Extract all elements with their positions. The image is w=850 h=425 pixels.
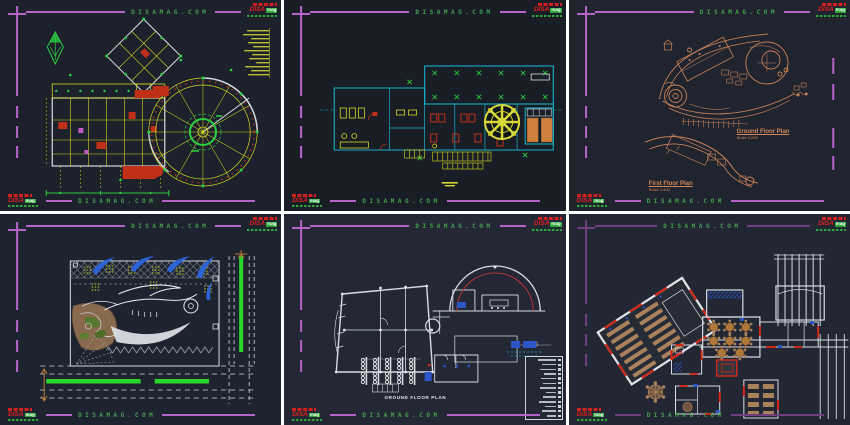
watermark-top: DISAMAG.COM [595, 8, 810, 16]
panel-resort-plan[interactable]: DISAMAG.COM DISAMAG.COM DISAmag DISAmag [0, 0, 281, 211]
watermark-text: DISAMAG.COM [647, 198, 725, 205]
watermark-text: DISAMAG.COM [415, 223, 493, 230]
linear-building-drawing [284, 0, 565, 211]
logo-tagline [816, 15, 846, 17]
watermark-bottom: DISAMAG.COM [615, 411, 824, 419]
dome-plan-drawing [284, 214, 565, 425]
restaurant-plan-drawing [569, 214, 850, 425]
panel-linear-building-plan[interactable]: DISAMAG.COM DISAMAG.COM DISAmag DISAmag [284, 0, 565, 211]
logo-tagline [292, 205, 322, 207]
disamag-logo: DISAmag [247, 3, 277, 17]
plan-title-label: GROUND FLOOR PLAN [380, 395, 450, 400]
cad-plan-collage: DISAMAG.COM DISAMAG.COM DISAmag DISAmag [0, 0, 850, 425]
disamag-logo: DISAmag [532, 217, 562, 231]
disamag-logo: DISAmag [577, 408, 607, 422]
watermark-bottom: DISAMAG.COM [46, 197, 255, 205]
resort-plan-drawing [0, 0, 281, 211]
disamag-logo: DISAmag [532, 3, 562, 17]
watermark-text: DISAMAG.COM [362, 412, 440, 419]
panel-landscape-site-plan[interactable]: DISAMAG.COM DISAMAG.COM DISAmag DISAmag [0, 214, 281, 425]
disamag-logo: DISAmag [8, 194, 38, 208]
watermark-bottom: DISAMAG.COM [615, 197, 824, 205]
watermark-text: DISAMAG.COM [78, 412, 156, 419]
disamag-logo: DISAmag [8, 408, 38, 422]
watermark-top: DISAMAG.COM [26, 8, 241, 16]
watermark-text: DISAMAG.COM [647, 412, 725, 419]
logo-tagline [247, 229, 277, 231]
disamag-logo: DISAmag [816, 217, 846, 231]
watermark-text: DISAMAG.COM [78, 198, 156, 205]
logo-tagline [8, 205, 38, 207]
disamag-logo: DISAmag [292, 408, 322, 422]
watermark-top: DISAMAG.COM [310, 222, 525, 230]
site-plan-drawing [0, 214, 281, 425]
disamag-logo: DISAmag [292, 194, 322, 208]
disamag-logo: DISAmag [577, 194, 607, 208]
logo-tagline [532, 229, 562, 231]
watermark-text: DISAMAG.COM [131, 223, 209, 230]
logo-tagline [8, 419, 38, 421]
ground-floor-label: Ground Floor Plan Scale 1/200 [737, 129, 790, 141]
logo-tagline [577, 205, 607, 207]
logo-tagline [816, 229, 846, 231]
watermark-text: DISAMAG.COM [700, 9, 778, 16]
watermark-text: DISAMAG.COM [131, 9, 209, 16]
watermark-text: DISAMAG.COM [362, 198, 440, 205]
panel-dome-floor-plan[interactable]: GROUND FLOOR PLAN DISAMAG.COM DISAMAG.CO… [284, 214, 565, 425]
panel-organic-curved-plan[interactable]: Ground Floor Plan Scale 1/200 First Floo… [569, 0, 850, 211]
logo-tagline [532, 15, 562, 17]
watermark-top: DISAMAG.COM [310, 8, 525, 16]
watermark-top: DISAMAG.COM [595, 222, 810, 230]
first-floor-label: First Floor Plan Scale 1/100 [649, 181, 693, 193]
disamag-logo: DISAmag [247, 217, 277, 231]
watermark-top: DISAMAG.COM [26, 222, 241, 230]
watermark-text: DISAMAG.COM [663, 223, 741, 230]
watermark-text: DISAMAG.COM [415, 9, 493, 16]
logo-tagline [577, 419, 607, 421]
watermark-bottom: DISAMAG.COM [46, 411, 255, 419]
organic-plan-drawing [569, 0, 850, 211]
disamag-logo: DISAmag [816, 3, 846, 17]
watermark-bottom: DISAMAG.COM [330, 411, 539, 419]
logo-tagline [247, 15, 277, 17]
watermark-bottom: DISAMAG.COM [330, 197, 539, 205]
panel-restaurant-plan[interactable]: DISAMAG.COM DISAMAG.COM DISAmag DISAmag [569, 214, 850, 425]
logo-tagline [292, 419, 322, 421]
